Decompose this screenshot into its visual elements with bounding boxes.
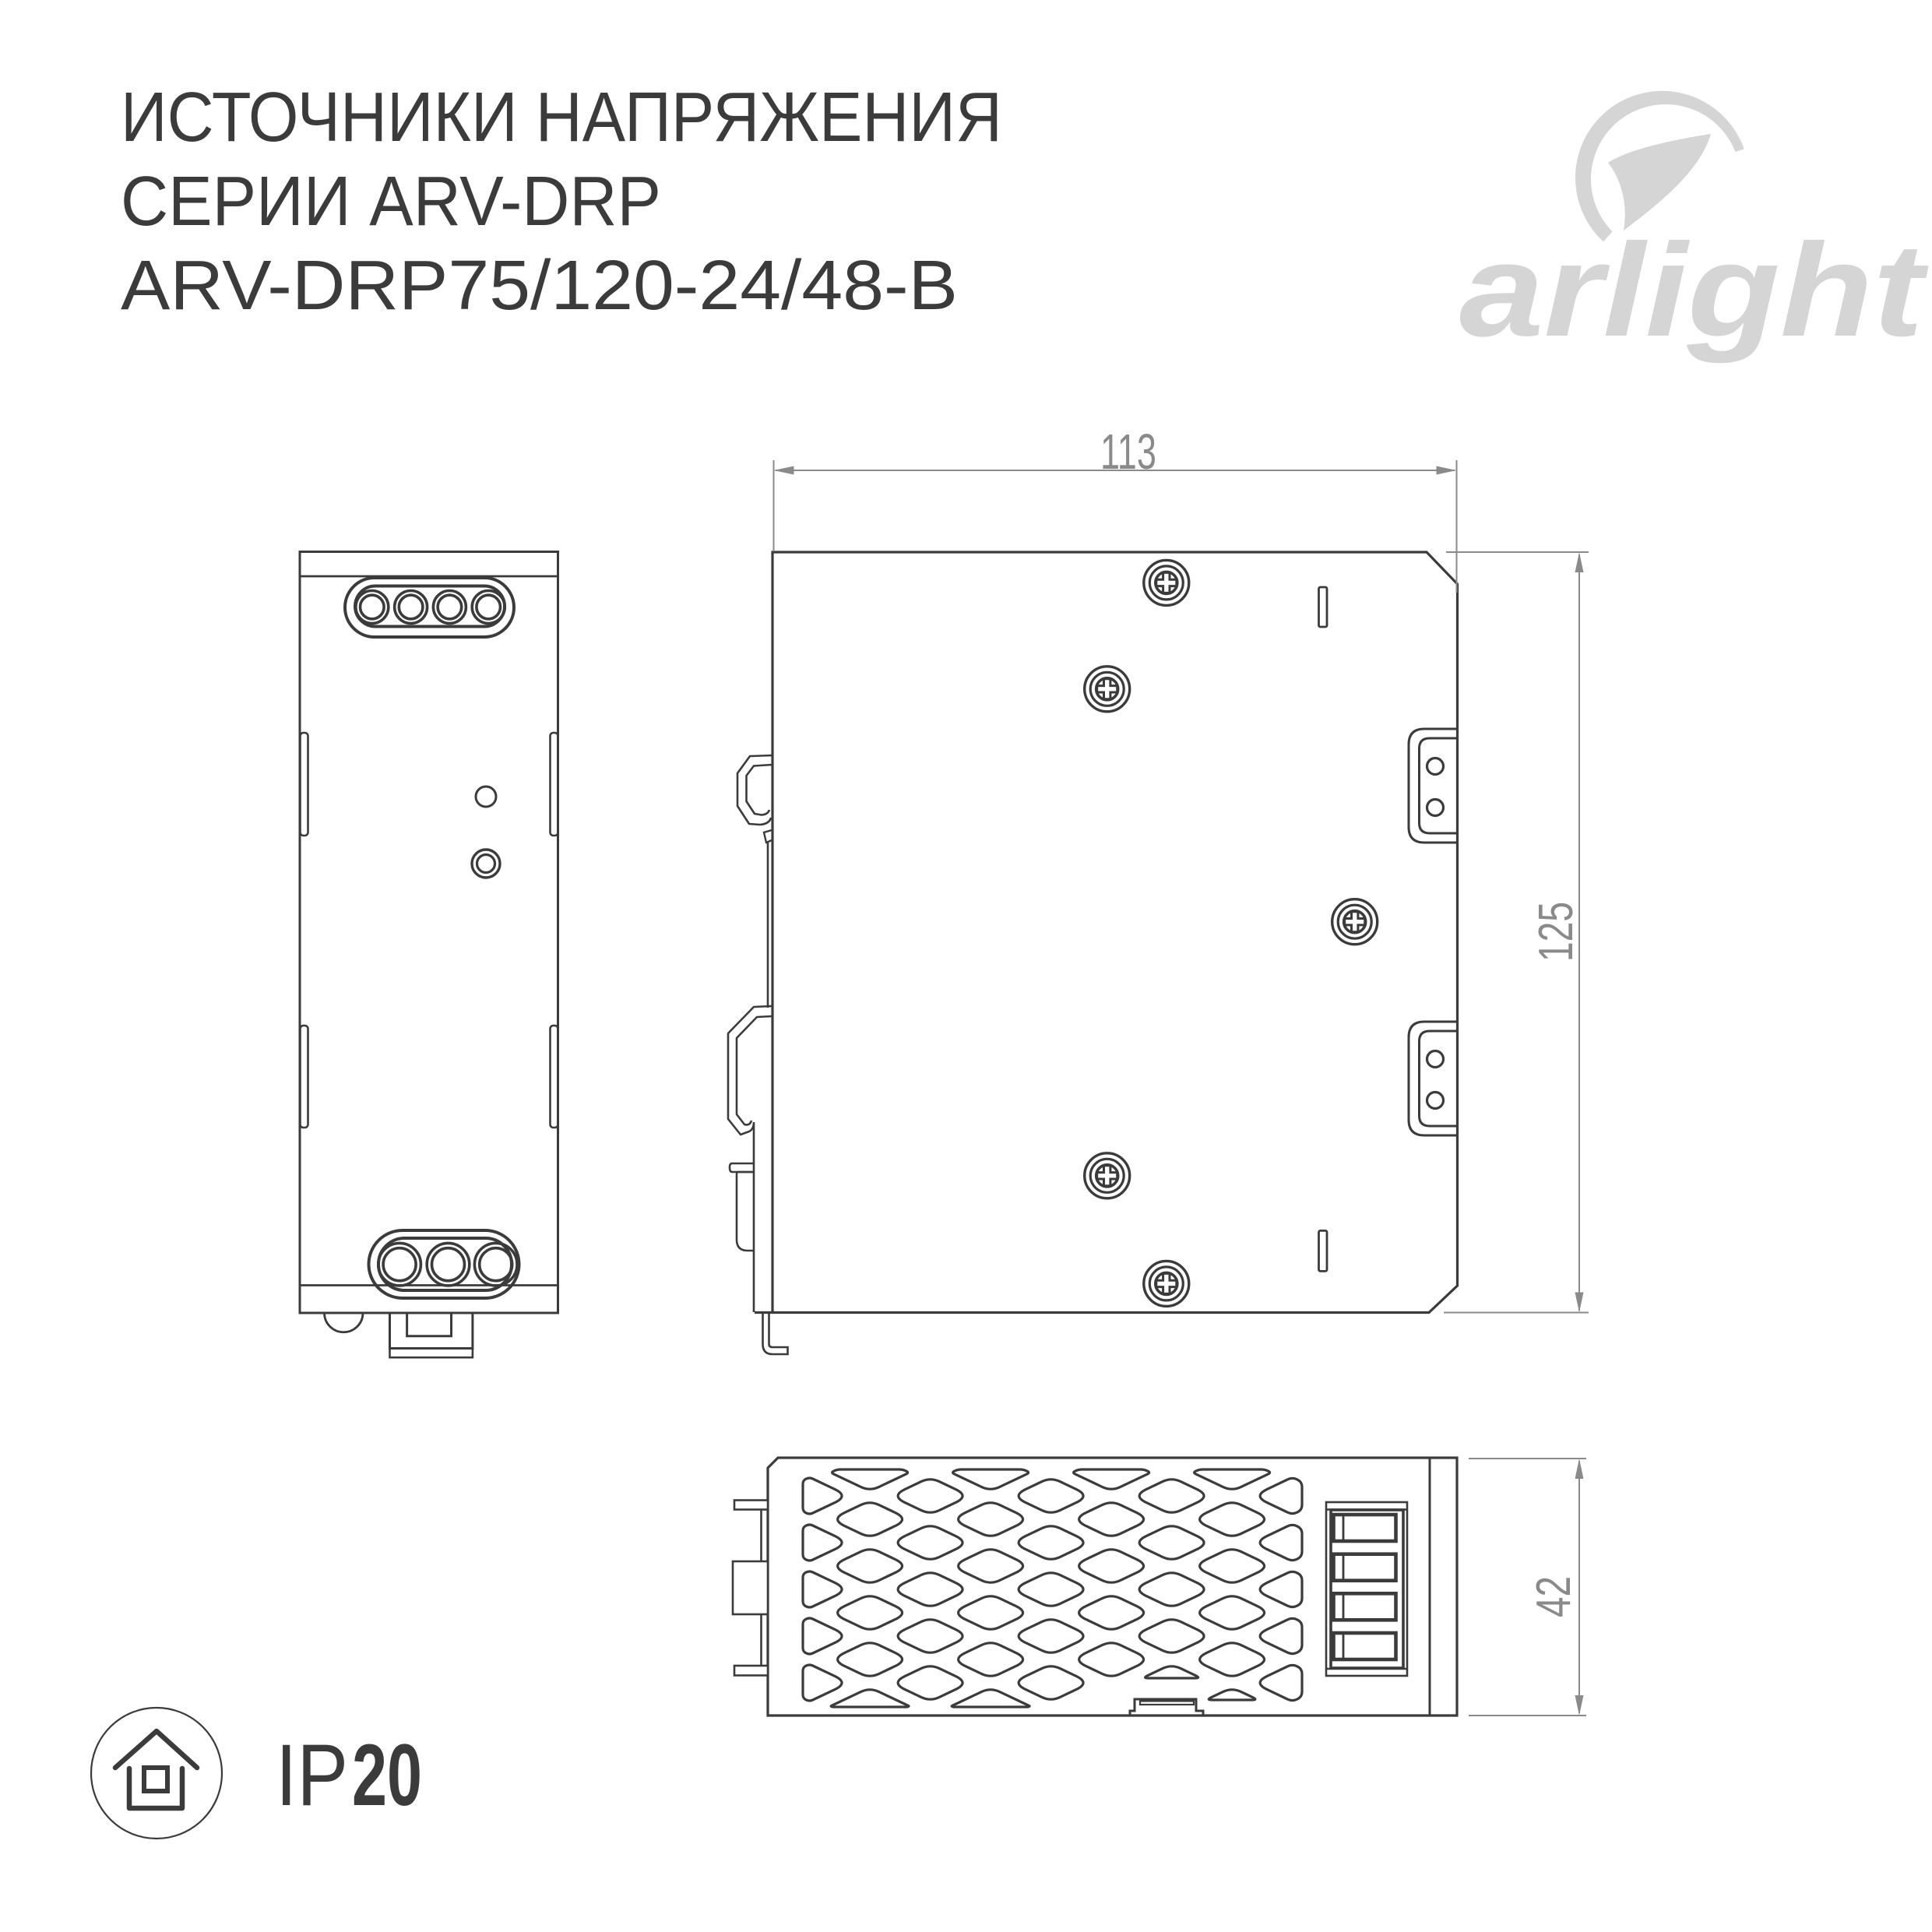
svg-text:arlight: arlight [1459,216,1929,364]
svg-text:113: 113 [1100,424,1156,480]
svg-text:ARV-DRP75/120-24/48-B: ARV-DRP75/120-24/48-B [121,247,958,325]
svg-text:125: 125 [1529,902,1583,962]
svg-text:СЕРИИ ARV-DRP: СЕРИИ ARV-DRP [121,163,661,241]
svg-text:20: 20 [352,1726,422,1824]
svg-text:IP: IP [276,1726,348,1824]
svg-text:42: 42 [1527,1576,1581,1617]
svg-text:ИСТОЧНИКИ НАПРЯЖЕНИЯ: ИСТОЧНИКИ НАПРЯЖЕНИЯ [121,79,1002,157]
